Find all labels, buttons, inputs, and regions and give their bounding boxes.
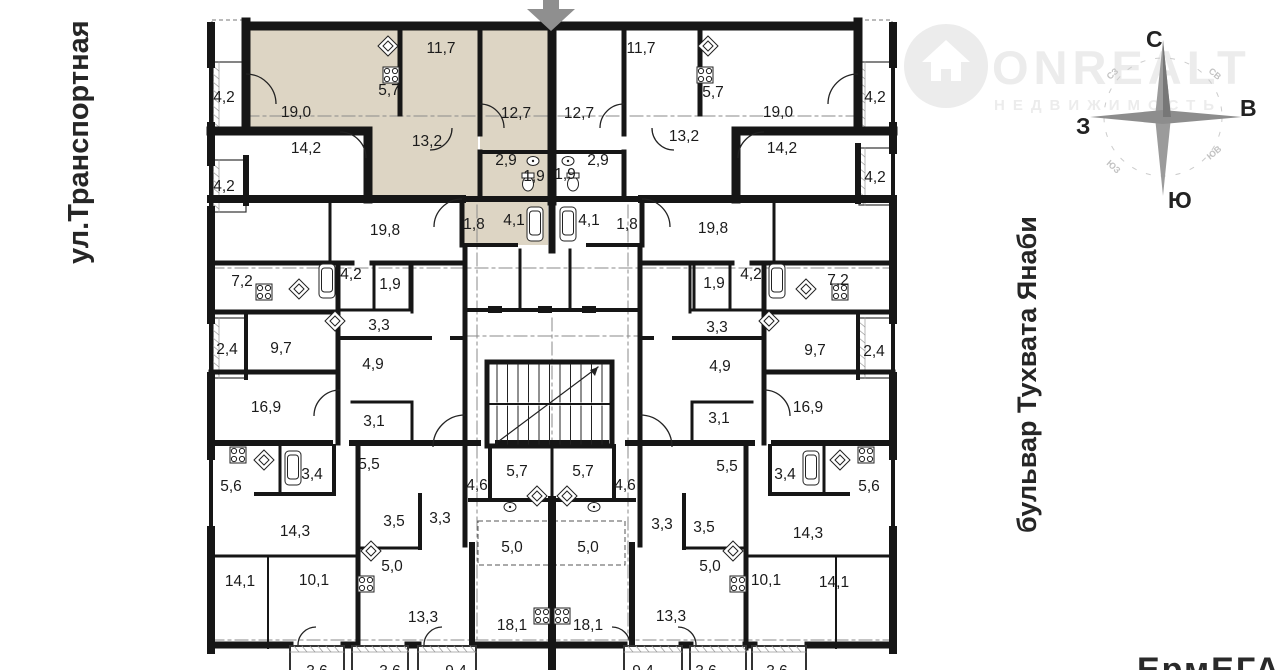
room-area-label: 19,8 xyxy=(698,220,728,237)
room-area-label: 4,2 xyxy=(864,169,886,186)
stove-icon xyxy=(383,67,399,83)
room-area-label: 1,9 xyxy=(379,276,401,293)
room-area-label: 5,0 xyxy=(577,539,599,556)
room-area-label: 3,5 xyxy=(383,513,405,530)
shower-icon xyxy=(796,279,816,299)
room-area-label: 7,2 xyxy=(827,272,849,289)
room-area-label: 3,3 xyxy=(706,319,728,336)
room-area-label: 13,2 xyxy=(669,128,699,145)
tub-icon xyxy=(285,451,301,485)
room-area-label: 3,3 xyxy=(429,510,451,527)
room-area-label: 14,2 xyxy=(767,140,797,157)
sink-icon xyxy=(527,157,539,166)
sink-icon xyxy=(588,503,600,512)
room-area-label: 19,8 xyxy=(370,222,400,239)
room-area-label: 13,3 xyxy=(408,609,438,626)
room-area-label: 4,1 xyxy=(503,212,525,229)
room-area-label: 1,8 xyxy=(616,216,638,233)
shower-icon xyxy=(830,450,850,470)
room-area-label: 9,7 xyxy=(270,340,292,357)
door-arc xyxy=(764,390,790,416)
room-area-label: 12,7 xyxy=(564,105,594,122)
stove-icon xyxy=(230,447,246,463)
room-area-label: 5,0 xyxy=(381,558,403,575)
tub-icon xyxy=(319,264,335,298)
stove-icon xyxy=(858,447,874,463)
room-area-label: 5,7 xyxy=(702,84,724,101)
shower-icon xyxy=(557,486,577,506)
room-area-label: 4,6 xyxy=(614,477,636,494)
room-area-label: 5,0 xyxy=(501,539,523,556)
room-area-label: 4,6 xyxy=(466,477,488,494)
room-area-label: 2,4 xyxy=(216,341,238,358)
room-area-label: 5,5 xyxy=(358,456,380,473)
room-area-label: 1,9 xyxy=(554,166,576,183)
street-label-bottom-partial: ЕрмЕГА xyxy=(1137,651,1280,670)
tub-icon xyxy=(527,207,543,241)
room-area-label: 4,1 xyxy=(578,212,600,229)
room-area-label: 10,1 xyxy=(751,572,781,589)
highlighted-apartment-area xyxy=(480,28,550,152)
room-area-label: 3,6 xyxy=(695,663,717,670)
room-area-label: 5,0 xyxy=(699,558,721,575)
room-area-label: 3,1 xyxy=(708,410,730,427)
room-area-label: 13,2 xyxy=(412,133,442,150)
room-area-label: 4,2 xyxy=(740,266,762,283)
room-area-label: 2,9 xyxy=(587,152,609,169)
room-area-label: 3,3 xyxy=(368,317,390,334)
door-arc xyxy=(642,199,670,227)
room-area-label: 9,7 xyxy=(804,342,826,359)
room-area-label: 3,6 xyxy=(306,663,328,670)
room-area-label: 5,5 xyxy=(716,458,738,475)
shower-icon xyxy=(289,279,309,299)
room-area-label: 5,6 xyxy=(220,478,242,495)
room-area-label: 19,0 xyxy=(281,104,312,121)
stove-icon xyxy=(730,576,746,592)
door-arc xyxy=(434,199,462,227)
room-area-label: 4,2 xyxy=(213,178,235,195)
door-arc xyxy=(340,132,366,158)
room-area-label: 1,8 xyxy=(463,216,485,233)
room-area-label: 9,4 xyxy=(632,663,654,670)
shower-icon xyxy=(254,450,274,470)
room-area-label: 3,4 xyxy=(774,466,796,483)
stove-icon xyxy=(256,284,272,300)
room-area-label: 14,1 xyxy=(819,574,849,591)
floorplan-canvas: ONREALT НЕДВИЖИМОСТЬ С В З Ю СЗ СВ ЮЗ ЮВ… xyxy=(0,0,1280,670)
room-area-label: 10,1 xyxy=(299,572,329,589)
watermark: ONREALT НЕДВИЖИМОСТЬ xyxy=(904,24,1251,114)
floorplan-page: ONREALT НЕДВИЖИМОСТЬ С В З Ю СЗ СВ ЮЗ ЮВ… xyxy=(0,0,1280,670)
compass-east-label: В xyxy=(1240,95,1257,121)
stove-icon xyxy=(534,608,550,624)
room-area-label: 4,2 xyxy=(213,89,235,106)
room-area-label: 18,1 xyxy=(497,617,527,634)
room-area-label: 4,2 xyxy=(340,266,362,283)
room-area-label: 3,6 xyxy=(766,663,788,670)
compass-south-label: Ю xyxy=(1168,187,1192,213)
room-area-label: 4,9 xyxy=(362,356,384,373)
door-arc xyxy=(298,627,316,645)
room-area-label: 4,9 xyxy=(709,358,731,375)
room-area-label: 3,6 xyxy=(379,663,401,670)
stove-icon xyxy=(554,608,570,624)
door-arc xyxy=(424,627,442,645)
room-area-label: 14,1 xyxy=(225,573,255,590)
room-area-label: 14,3 xyxy=(280,523,310,540)
room-area-label: 18,1 xyxy=(573,617,603,634)
stove-icon xyxy=(358,576,374,592)
shower-icon xyxy=(527,486,547,506)
room-area-label: 11,7 xyxy=(426,40,455,57)
room-area-label: 5,7 xyxy=(506,463,528,480)
room-area-label: 14,2 xyxy=(291,140,321,157)
room-area-label: 16,9 xyxy=(251,399,281,416)
sink-icon xyxy=(562,157,574,166)
room-area-label: 3,3 xyxy=(651,516,673,533)
room-area-label: 19,0 xyxy=(763,104,794,121)
tub-icon xyxy=(803,451,819,485)
balcony-outline xyxy=(212,20,246,62)
shower-icon xyxy=(723,541,743,561)
room-area-label: 7,2 xyxy=(231,273,253,290)
room-area-label: 13,3 xyxy=(656,608,686,625)
tub-icon xyxy=(560,207,576,241)
shower-icon xyxy=(361,541,381,561)
floor-plan: 4,219,05,711,712,712,711,75,713,213,219,… xyxy=(211,20,893,670)
room-area-label: 12,7 xyxy=(501,105,531,122)
street-label-left: ул.Транспортная xyxy=(63,20,95,264)
tub-icon xyxy=(769,264,785,298)
room-area-label: 1,9 xyxy=(523,168,545,185)
room-area-label: 2,4 xyxy=(863,343,885,360)
room-area-label: 14,3 xyxy=(793,525,823,542)
street-label-right: бульвар Тухвата Янаби xyxy=(1012,216,1042,533)
room-area-label: 16,9 xyxy=(793,399,823,416)
compass-north-label: С xyxy=(1146,26,1163,52)
room-area-label: 3,4 xyxy=(301,466,323,483)
room-area-label: 3,5 xyxy=(693,519,715,536)
sink-icon xyxy=(504,503,516,512)
door-arc xyxy=(738,132,764,158)
room-area-label: 11,7 xyxy=(626,40,655,57)
compass-southwest-label: ЮЗ xyxy=(1105,158,1123,176)
compass-west-label: З xyxy=(1076,113,1090,139)
room-area-label: 5,7 xyxy=(572,463,594,480)
balcony-outline xyxy=(858,20,892,62)
room-area-label: 2,9 xyxy=(495,152,517,169)
room-area-label: 3,1 xyxy=(363,413,385,430)
room-area-label: 4,2 xyxy=(864,89,886,106)
room-area-label: 1,9 xyxy=(703,275,725,292)
room-area-label: 5,7 xyxy=(378,82,400,99)
compass-southeast-label: ЮВ xyxy=(1205,143,1224,161)
watermark-tagline: НЕДВИЖИМОСТЬ xyxy=(994,97,1222,114)
staircase xyxy=(487,362,612,446)
stove-icon xyxy=(697,67,713,83)
room-area-label: 5,6 xyxy=(858,478,880,495)
room-area-label: 9,4 xyxy=(445,663,467,670)
